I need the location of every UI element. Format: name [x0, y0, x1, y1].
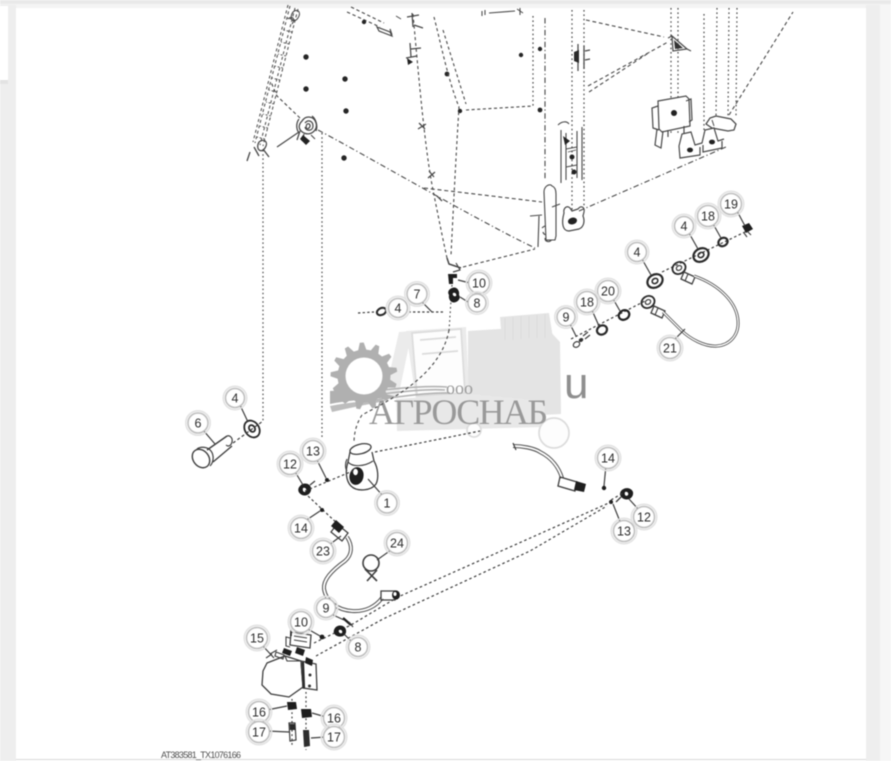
- svg-text:4: 4: [395, 301, 402, 315]
- svg-text:14: 14: [601, 451, 615, 465]
- svg-text:17: 17: [327, 730, 341, 744]
- svg-text:9: 9: [563, 310, 570, 324]
- svg-text:18: 18: [701, 209, 715, 223]
- svg-text:13: 13: [306, 444, 320, 458]
- svg-text:15: 15: [250, 631, 264, 645]
- svg-text:8: 8: [474, 296, 481, 310]
- svg-text:4: 4: [232, 391, 239, 405]
- svg-text:14: 14: [294, 521, 308, 535]
- svg-text:10: 10: [294, 615, 308, 629]
- svg-text:10: 10: [472, 276, 486, 290]
- svg-text:9: 9: [323, 601, 330, 615]
- svg-text:u: u: [564, 359, 588, 408]
- svg-text:АГРОСНАБ: АГРОСНАБ: [369, 392, 548, 432]
- svg-text:8: 8: [355, 640, 362, 654]
- svg-text:19: 19: [724, 197, 738, 211]
- svg-text:AT383581_TX1076166: AT383581_TX1076166: [161, 750, 241, 760]
- svg-text:20: 20: [601, 284, 615, 298]
- svg-text:17: 17: [252, 725, 266, 739]
- svg-text:4: 4: [634, 245, 641, 259]
- svg-text:23: 23: [316, 544, 330, 558]
- svg-text:21: 21: [663, 341, 677, 355]
- svg-text:4: 4: [681, 219, 688, 233]
- svg-text:1: 1: [384, 496, 391, 510]
- svg-text:16: 16: [252, 705, 266, 719]
- svg-text:24: 24: [390, 536, 404, 550]
- svg-text:16: 16: [327, 711, 341, 725]
- svg-text:7: 7: [414, 287, 421, 301]
- svg-text:12: 12: [283, 457, 297, 471]
- svg-text:6: 6: [195, 416, 202, 430]
- svg-text:13: 13: [617, 524, 631, 538]
- svg-text:18: 18: [580, 295, 594, 309]
- svg-text:12: 12: [637, 510, 651, 524]
